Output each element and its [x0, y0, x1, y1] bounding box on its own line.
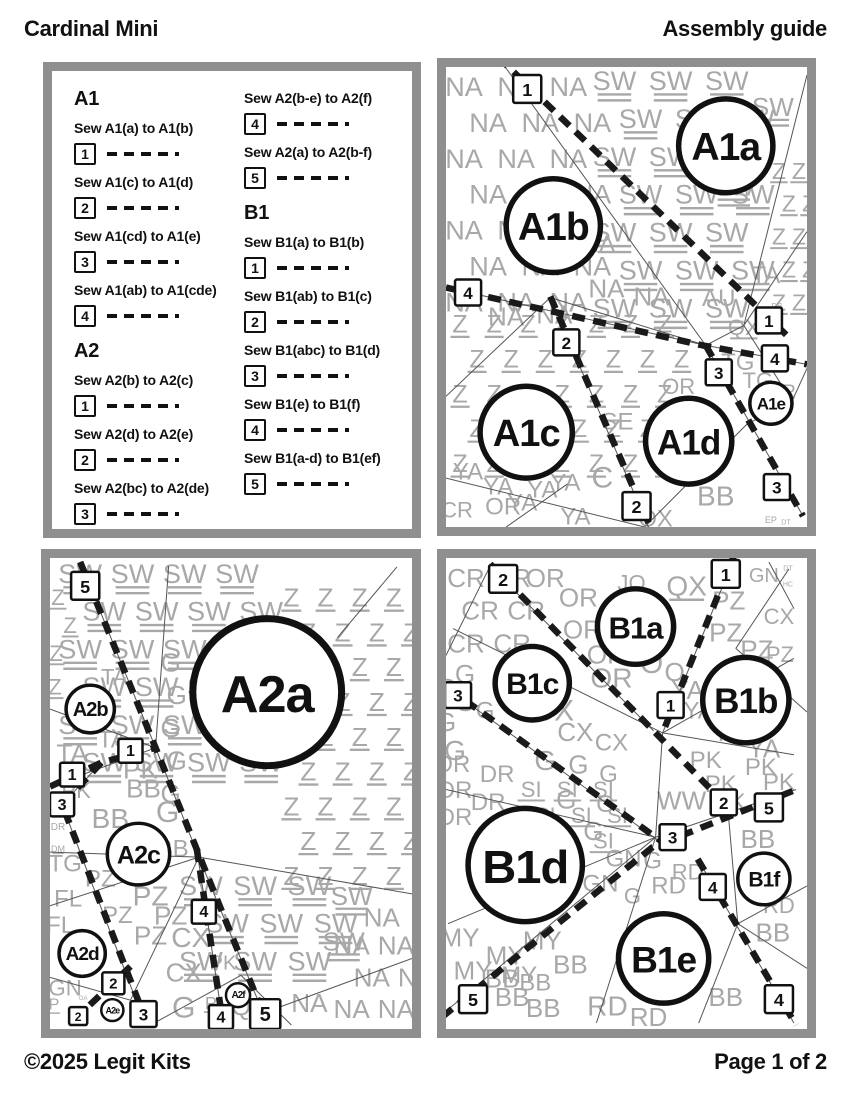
fabric-code: Z [403, 757, 412, 787]
sew-step-label: Sew A1(cd) to A1(e) [74, 229, 242, 244]
sew-step-label: Sew A2(a) to A2(b-f) [244, 145, 412, 160]
fabric-code: NA [378, 931, 412, 961]
fabric-code: G [167, 746, 187, 776]
sew-step-row: 4 [244, 113, 412, 135]
fabric-code: Z [403, 618, 412, 648]
fabric-code: Z [772, 158, 786, 184]
sew-step-label: Sew A2(b-e) to A2(f) [244, 91, 412, 106]
fabric-code: PZ [134, 921, 168, 951]
diagram-b1: CRCRCRCRCRCRSISISISISISISISISIOROROROROR… [446, 558, 807, 1029]
fabric-code: Z [782, 191, 796, 217]
sew-step-label: Sew B1(a) to B1(b) [244, 235, 412, 250]
seam-dash-sample [277, 176, 349, 180]
fabric-code: HC [783, 581, 793, 588]
seam-dash-sample [277, 266, 349, 270]
fabric-code: OR [485, 494, 521, 521]
seam-step-number: 4 [463, 284, 473, 303]
piece-label: A2d [66, 944, 99, 965]
fabric-code: NA [364, 903, 401, 933]
fabric-code: Z [802, 191, 807, 217]
instructions-column-1: A1Sew A1(a) to A1(b)1Sew A1(c) to A1(d)2… [74, 83, 242, 529]
fabric-code: SW [288, 871, 332, 901]
sew-step-label: Sew A2(bc) to A2(de) [74, 481, 242, 496]
fabric-code: SW [705, 67, 749, 96]
fabric-code: Z [318, 792, 334, 822]
fabric-code: BB [740, 826, 775, 854]
seam-step-number: 1 [666, 697, 675, 716]
seam-step-number: 2 [498, 570, 508, 590]
diagram-a1: NANANANANANANANANANANANANANANANANANANANA… [446, 67, 807, 527]
fabric-code: NA [291, 988, 328, 1018]
step-number-box: 4 [74, 305, 96, 327]
fabric-code: SW [187, 597, 231, 627]
fabric-code: AU [702, 285, 735, 312]
fabric-code: CX [764, 604, 795, 629]
fabric-code: CR [446, 498, 473, 523]
fabric-code: EP [765, 515, 777, 525]
fabric-code: Z [782, 257, 796, 283]
sew-step-label: Sew B1(abc) to B1(d) [244, 343, 412, 358]
fabric-code: Z [469, 345, 484, 373]
instructions-column-2: Sew A2(b-e) to A2(f)4Sew A2(a) to A2(b-f… [244, 83, 412, 529]
fabric-code: Z [283, 792, 299, 822]
fabric-code: SW [58, 635, 102, 665]
fabric-code: NA [446, 144, 483, 174]
fabric-code: BB [495, 984, 530, 1012]
assembly-guide-page: Cardinal Mini Assembly guide A1Sew A1(a)… [0, 0, 851, 1097]
fabric-code: DR [480, 761, 515, 788]
seam-step-number: 4 [708, 878, 718, 897]
fabric-code: SW [233, 871, 277, 901]
piece-label: A1b [518, 206, 589, 249]
fabric-code: Z [792, 158, 806, 184]
sew-step-row: 3 [74, 251, 242, 273]
fabric-code: G [446, 709, 456, 737]
doc-subtitle: Assembly guide [662, 16, 827, 42]
seam-dash-sample [107, 512, 179, 516]
fabric-code: Z [352, 792, 368, 822]
step-number-box: 3 [244, 365, 266, 387]
fabric-code: Z [283, 583, 299, 613]
sew-step-label: Sew A1(ab) to A1(cde) [74, 283, 242, 298]
piece-label: B1c [506, 668, 559, 701]
seam-step-number: 5 [468, 990, 478, 1010]
patch-boundary-line [728, 807, 738, 923]
fabric-code: GN [749, 565, 779, 587]
fabric-code: SI [521, 777, 542, 802]
piece-label: A2b [73, 699, 109, 721]
fabric-code: NA [633, 282, 670, 312]
fabric-code: NA [469, 180, 507, 210]
fabric-code: RD [587, 991, 628, 1022]
step-number-box: 4 [244, 419, 266, 441]
step-number-box: 1 [74, 395, 96, 417]
fabric-code: C [592, 462, 614, 495]
fabric-code: GA [79, 996, 88, 1002]
fabric-code: SW [215, 559, 259, 589]
fabric-code: CX [166, 957, 202, 987]
seam-step-number: 4 [774, 990, 784, 1010]
step-number-box: 2 [244, 311, 266, 333]
fabric-code: Z [386, 792, 402, 822]
fabric-code: SW [619, 104, 663, 134]
sew-step-row: 3 [244, 365, 412, 387]
fabric-code: SW [135, 597, 179, 627]
fabric-code: G [599, 761, 618, 788]
fabric-code: Z [772, 224, 786, 250]
fabric-code: SW [111, 559, 155, 589]
seam-dash-sample [277, 122, 349, 126]
fabric-code: G [160, 647, 180, 677]
fabric-code: NA [446, 216, 483, 246]
sew-step-row: 4 [244, 419, 412, 441]
fabric-code: SW [323, 927, 366, 957]
fabric-code: BB [708, 984, 743, 1012]
diagram-panel-a2: SWSWSWSWSWSWSWSWSWSWSWSWSWSWSWSWSWSWSWSW… [41, 549, 421, 1038]
seam-step-number: 1 [721, 565, 731, 585]
footer-page-number: Page 1 of 2 [714, 1049, 827, 1075]
fabric-code: CX [171, 922, 210, 953]
section-heading: B1 [244, 201, 412, 225]
sew-step-row: 1 [244, 257, 412, 279]
fabric-code: Z [51, 585, 65, 610]
fabric-code: NA [497, 144, 535, 174]
sew-step-row: 2 [74, 449, 242, 471]
patch-boundary-line [656, 733, 663, 837]
seam-step-number: 3 [714, 364, 723, 383]
diagram-a2: SWSWSWSWSWSWSWSWSWSWSWSWSWSWSWSWSWSWSWSW… [50, 558, 412, 1029]
sew-step-row: 5 [244, 473, 412, 495]
fabric-code: Z [623, 380, 638, 408]
sew-step-label: Sew A2(b) to A2(c) [74, 373, 242, 388]
fabric-code: NA [550, 144, 588, 174]
fabric-code: WW [657, 788, 707, 816]
seam-step-number: 2 [109, 976, 117, 993]
instructions-panel: A1Sew A1(a) to A1(b)1Sew A1(c) to A1(d)2… [43, 62, 421, 538]
fabric-code: TG [50, 851, 82, 878]
fabric-code: SW [705, 218, 749, 248]
fabric-code: SW [593, 67, 637, 96]
seam-dash-sample [107, 206, 179, 210]
sew-step-row: 5 [244, 167, 412, 189]
fabric-code: NA [469, 108, 507, 138]
seam-step-number: 5 [260, 1004, 271, 1026]
fabric-code: BB [697, 481, 734, 512]
fabric-code: YA [453, 459, 483, 486]
piece-label: B1d [482, 841, 568, 893]
seam-step-number: 2 [75, 1010, 82, 1024]
fabric-code: G [556, 787, 576, 815]
fabric-code: Z [606, 345, 621, 373]
fabric-code: Z [674, 345, 689, 373]
step-number-box: 3 [74, 251, 96, 273]
fabric-code: Z [50, 641, 63, 666]
fabric-code: Z [369, 687, 385, 717]
seam-step-number: 3 [139, 1006, 149, 1025]
fabric-code: NA [469, 252, 507, 282]
fabric-code: Z [369, 757, 385, 787]
fabric-code: Z [386, 861, 402, 891]
fabric-code: BB [526, 995, 561, 1023]
fabric-code: TA [751, 262, 780, 289]
fabric-code: DR [446, 804, 472, 831]
section-heading: A2 [74, 339, 242, 363]
fabric-code: Z [452, 310, 467, 338]
section-heading: A1 [74, 87, 242, 111]
piece-label: B1b [714, 682, 777, 721]
fabric-code: Z [386, 722, 402, 752]
fabric-code: SW [675, 256, 719, 286]
fabric-code: Z [352, 583, 368, 613]
fabric-code: QX [666, 570, 707, 601]
sew-step-row: 3 [74, 503, 242, 525]
seam-step-number: 3 [668, 829, 677, 848]
seam-step-number: 5 [764, 798, 774, 818]
fabric-code: RD [630, 1004, 668, 1029]
fabric-code: SW [649, 67, 693, 96]
seam-step-number: 1 [764, 312, 773, 331]
fabric-code: GN [605, 846, 641, 873]
fabric-code: Z [63, 613, 77, 638]
sew-step-label: Sew B1(ab) to B1(c) [244, 289, 412, 304]
fabric-code: Z [802, 257, 807, 283]
fabric-code: Z [640, 345, 655, 373]
fabric-code: NA [398, 962, 412, 992]
sew-step-label: Sew A2(d) to A2(e) [74, 427, 242, 442]
seam-dash-sample [107, 152, 179, 156]
fabric-code: Z [318, 583, 334, 613]
fabric-code: Z [403, 826, 412, 856]
seam-dash-sample [107, 260, 179, 264]
seam-step-number: 1 [522, 80, 532, 100]
fabric-code: Z [369, 826, 385, 856]
piece-label: A2a [221, 666, 316, 724]
piece-label: A1a [691, 126, 761, 169]
fabric-code: NA [446, 72, 483, 102]
sew-step-label: Sew B1(e) to B1(f) [244, 397, 412, 412]
fabric-code: NA [378, 994, 412, 1024]
fabric-code: NA [588, 274, 625, 304]
piece-label: B1f [748, 869, 781, 892]
doc-title: Cardinal Mini [24, 16, 158, 42]
piece-label: A2c [117, 841, 161, 869]
fabric-code: OR [662, 374, 695, 399]
fabric-code: Z [300, 757, 316, 787]
seam-dash-sample [277, 374, 349, 378]
fabric-code: DT [783, 565, 793, 572]
fabric-code: SW [259, 909, 303, 939]
seam-step-number: 3 [58, 797, 67, 814]
fabric-code: MY [446, 925, 480, 953]
seam-step-number: 1 [126, 743, 135, 760]
step-number-box: 2 [74, 197, 96, 219]
seam-step-number: 2 [719, 794, 728, 813]
fabric-code: CX [557, 719, 593, 747]
piece-label: A2f [231, 990, 246, 1001]
sew-step-label: Sew A1(a) to A1(b) [74, 121, 242, 136]
fabric-code: G [624, 883, 641, 908]
step-number-box: 2 [74, 449, 96, 471]
step-number-box: 1 [74, 143, 96, 165]
fabric-code: Z [335, 618, 351, 648]
seam-dash-sample [277, 320, 349, 324]
fabric-code: OR [559, 585, 598, 613]
step-number-box: 4 [244, 113, 266, 135]
fabric-code: Z [504, 345, 519, 373]
fabric-code: G [160, 713, 180, 743]
step-number-box: 5 [244, 473, 266, 495]
footer-copyright: ©2025 Legit Kits [24, 1049, 191, 1075]
sew-step-row: 1 [74, 143, 242, 165]
fabric-code: G [172, 992, 195, 1025]
fabric-code: G [167, 680, 187, 710]
diagram-panel-a1: NANANANANANANANANANANANANANANANANANANANA… [437, 58, 816, 536]
piece-label: A1c [493, 413, 561, 455]
fabric-code: Z [386, 652, 402, 682]
piece-label: B1a [609, 611, 665, 646]
step-number-box: 5 [244, 167, 266, 189]
fabric-code: NA [334, 994, 371, 1024]
seam-dash-sample [107, 458, 179, 462]
fabric-code: Z [335, 757, 351, 787]
piece-label: A2e [106, 1006, 121, 1016]
piece-label: A1e [757, 395, 786, 414]
fabric-code: P [50, 997, 59, 1014]
seam-dash-sample [277, 428, 349, 432]
fabric-code: Z [352, 652, 368, 682]
fabric-code: DT [781, 520, 791, 527]
fabric-code: Z [50, 675, 62, 700]
seam-step-number: 4 [199, 904, 208, 921]
seam-step-number: 1 [68, 767, 77, 784]
fabric-code: Z [335, 826, 351, 856]
seam-dash-sample [107, 404, 179, 408]
seam-step-number: 3 [453, 687, 462, 706]
fabric-code: Z [369, 618, 385, 648]
seam-step-number: 4 [770, 350, 780, 369]
fabric-code: CR [461, 598, 499, 626]
seam-dash-sample [277, 482, 349, 486]
fabric-code: CX [595, 729, 628, 756]
seam-step-number: 2 [632, 497, 642, 517]
fabric-code: BB [756, 920, 791, 948]
diagram-panel-b1: CRCRCRCRCRCRSISISISISISISISISIOROROROROR… [437, 549, 816, 1038]
fabric-code: DR [446, 751, 470, 778]
sew-step-label: Sew B1(a-d) to B1(ef) [244, 451, 412, 466]
fabric-code: Z [386, 583, 402, 613]
fabric-code: Z [792, 290, 806, 316]
seam-step-number: 4 [216, 1010, 225, 1027]
sew-step-row: 2 [244, 311, 412, 333]
fabric-code: Z [300, 826, 316, 856]
step-number-box: 3 [74, 503, 96, 525]
seam-step-number: 2 [562, 334, 571, 353]
piece-label: A1d [657, 423, 720, 462]
fabric-code: PZ [709, 620, 742, 648]
fabric-code: FL [54, 885, 82, 912]
sew-step-label: Sew A1(c) to A1(d) [74, 175, 242, 190]
fabric-code: Z [452, 380, 467, 408]
fabric-code: Z [403, 687, 412, 717]
fabric-code: Z [352, 722, 368, 752]
fabric-code: DR [51, 822, 66, 833]
fabric-code: BB [553, 951, 588, 979]
fabric-code: SW [163, 559, 207, 589]
sew-step-row: 1 [74, 395, 242, 417]
seam-dash-sample [107, 314, 179, 318]
fabric-code: NA [550, 72, 588, 102]
fabric-code: G [583, 818, 603, 846]
fabric-code: Z [538, 345, 553, 373]
step-number-box: 1 [244, 257, 266, 279]
sew-step-row: 4 [74, 305, 242, 327]
piece-label: B1e [631, 940, 696, 981]
seam-step-number: 3 [772, 479, 781, 498]
fabric-code: Z [623, 310, 638, 338]
sew-step-row: 2 [74, 197, 242, 219]
seam-step-number: 5 [80, 577, 90, 597]
